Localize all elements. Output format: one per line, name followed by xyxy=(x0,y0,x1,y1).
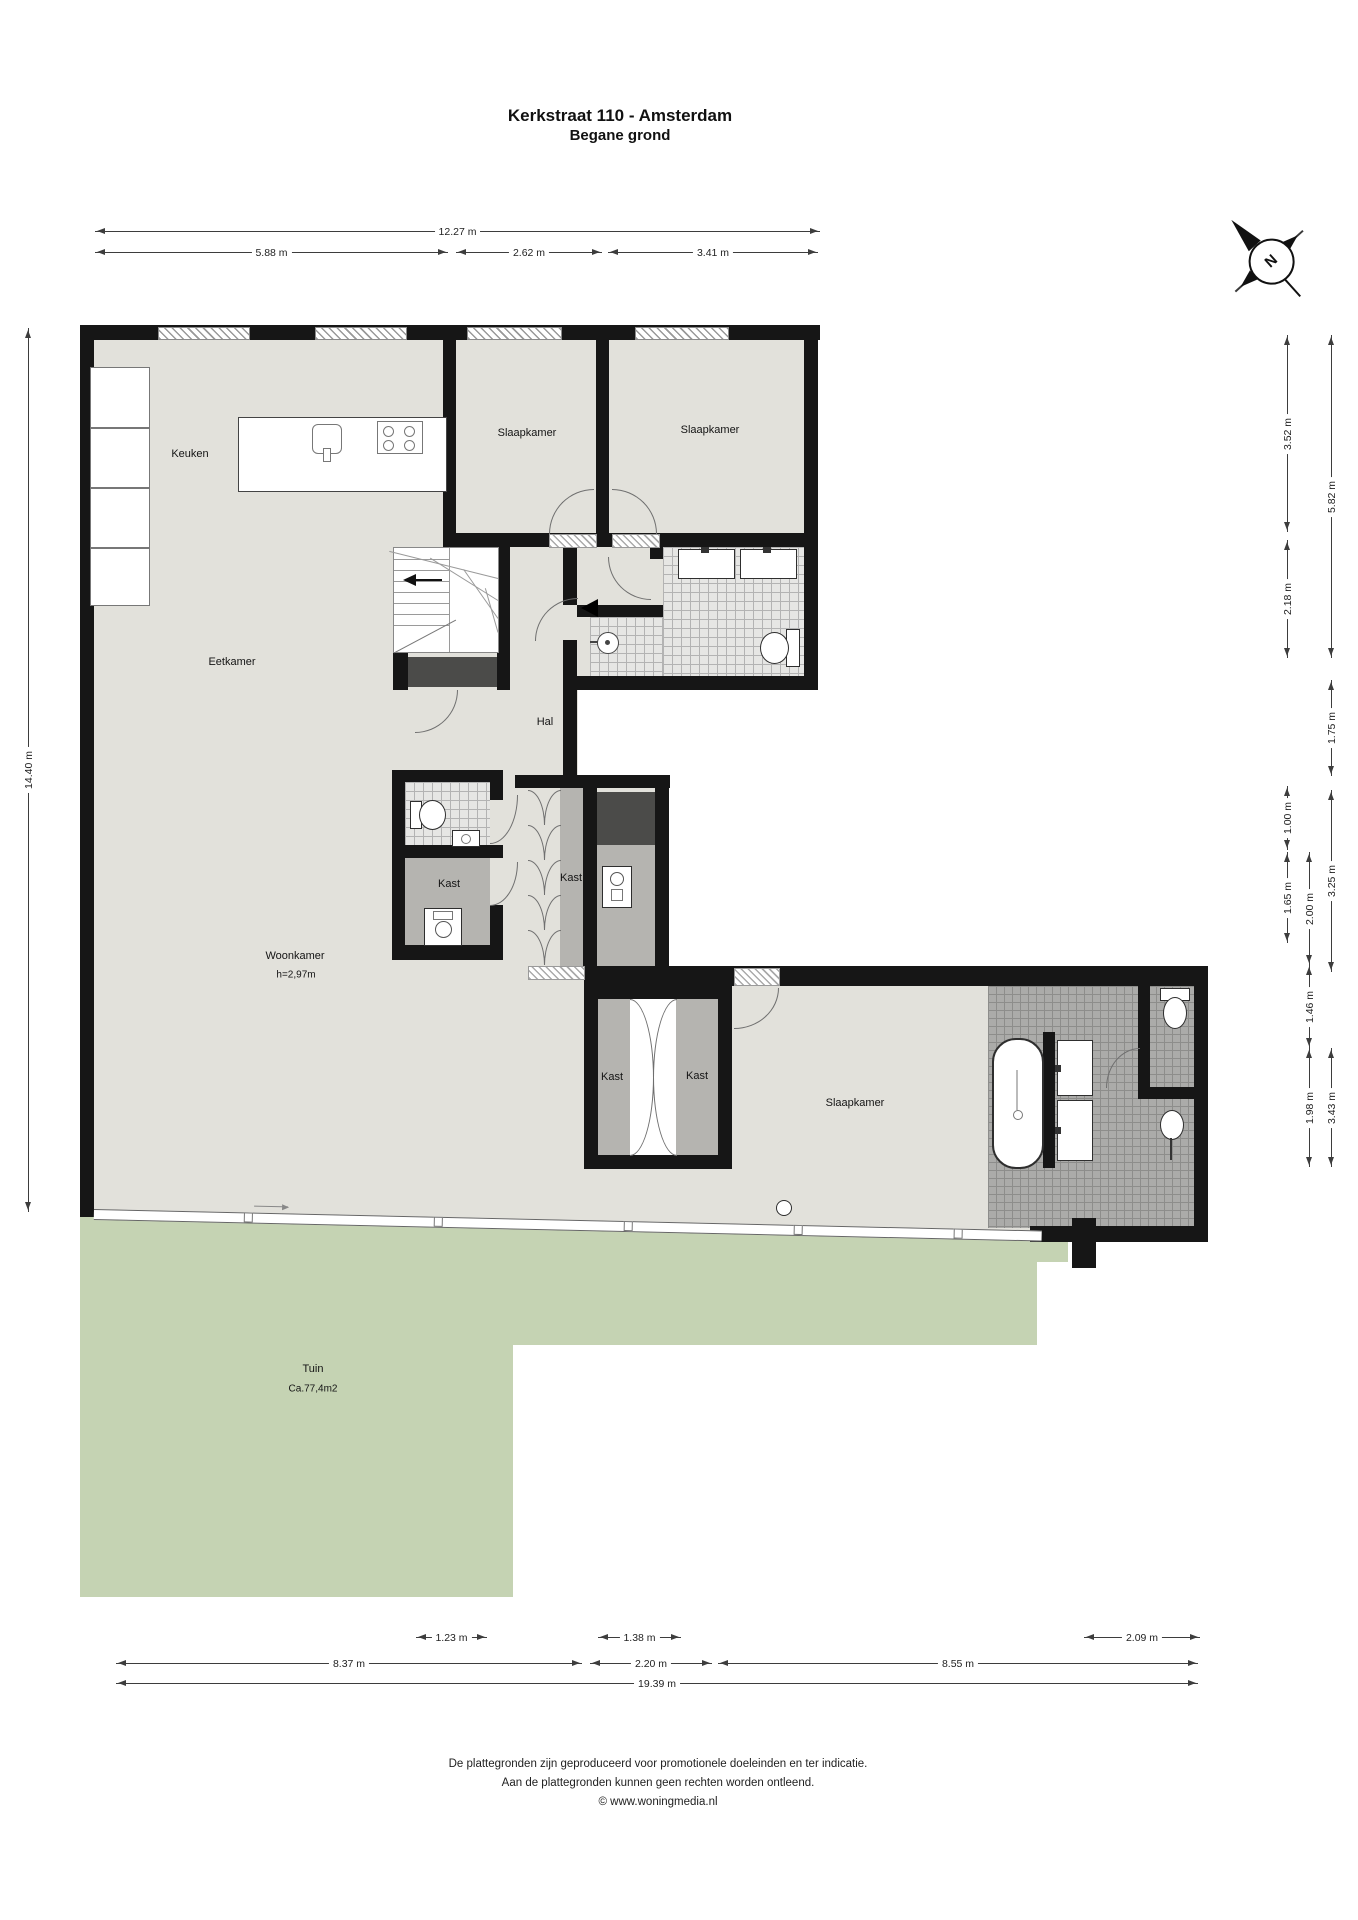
plan-graphic xyxy=(94,228,105,234)
wall-segment xyxy=(393,651,408,690)
plan-graphic xyxy=(1328,789,1334,800)
small-sink xyxy=(1160,1110,1184,1140)
plan-graphic xyxy=(25,327,31,338)
plan-graphic xyxy=(394,625,449,626)
plan-graphic xyxy=(1170,1138,1172,1160)
plan-graphic: 1.98 m xyxy=(1304,1087,1316,1127)
plan-graphic: 1.23 m xyxy=(431,1632,471,1644)
plan-graphic xyxy=(808,249,819,255)
plan-graphic xyxy=(610,872,624,886)
plan-graphic xyxy=(438,249,449,255)
plan-graphic xyxy=(1190,1634,1201,1640)
plan-graphic: 3.41 m xyxy=(693,247,733,259)
plan-graphic xyxy=(624,1221,633,1231)
vanity-sink xyxy=(1057,1040,1093,1096)
plan-graphic xyxy=(597,1634,608,1640)
wall-segment xyxy=(392,770,405,960)
plan-graphic xyxy=(408,657,497,687)
plan-graphic xyxy=(433,911,453,920)
kitchen-island xyxy=(238,417,447,492)
dim-right-10: 3.25 m xyxy=(1331,790,1332,972)
plan-graphic xyxy=(455,249,466,255)
plan-graphic: 3.52 m xyxy=(1282,413,1294,453)
wall-segment xyxy=(515,775,670,788)
plan-graphic xyxy=(1284,933,1290,944)
toilet-bowl xyxy=(760,632,789,664)
wall-segment xyxy=(392,770,503,782)
plan-graphic xyxy=(717,1660,728,1666)
plan-graphic: 12.27 m xyxy=(435,226,481,238)
bathtub xyxy=(992,1038,1044,1169)
cabinet xyxy=(90,488,150,548)
plan-graphic xyxy=(461,834,471,844)
plan-graphic xyxy=(1284,334,1290,345)
plan-graphic xyxy=(1013,1110,1023,1120)
plan-graphic xyxy=(1284,648,1290,659)
door-opening xyxy=(612,534,660,548)
toilet-bowl xyxy=(419,800,446,830)
dim-bottom-1: 1.23 m xyxy=(416,1637,487,1638)
cooktop xyxy=(377,421,423,454)
dim-bottom-3: 2.09 m xyxy=(1084,1637,1200,1638)
plan-graphic xyxy=(1284,522,1290,533)
shaft xyxy=(597,792,655,845)
plan-graphic xyxy=(394,614,449,615)
dim-right-5: 2.00 m xyxy=(1309,852,1310,965)
plan-graphic xyxy=(611,889,623,901)
plan-graphic xyxy=(383,440,394,451)
plan-graphic xyxy=(1328,648,1334,659)
wall-segment xyxy=(804,340,818,690)
plan-graphic xyxy=(394,570,449,571)
title-floor: Begane grond xyxy=(320,127,920,144)
plan-graphic: 19.39 m xyxy=(634,1678,680,1690)
shower-head xyxy=(597,632,619,654)
plan-graphic xyxy=(415,1634,426,1640)
plan-graphic: 5.88 m xyxy=(251,247,291,259)
plan-graphic xyxy=(394,603,449,604)
plan-graphic xyxy=(1328,679,1334,690)
plan-graphic xyxy=(94,249,105,255)
door-opening xyxy=(734,968,780,986)
plan-graphic xyxy=(671,1634,682,1640)
plan-graphic: 5.82 m xyxy=(1326,476,1338,516)
wall-segment xyxy=(598,986,718,999)
cabinet xyxy=(90,548,150,606)
staircase xyxy=(393,547,499,653)
room-label-slaapkamer-3: Slaapkamer xyxy=(826,1097,885,1109)
plan-graphic xyxy=(1284,539,1290,550)
plan-graphic xyxy=(383,426,394,437)
plan-graphic xyxy=(589,1660,600,1666)
room-area-tuin: Ca.77,4m2 xyxy=(289,1384,338,1395)
plan-graphic: N xyxy=(1202,194,1336,328)
plan-graphic xyxy=(323,448,331,462)
dim-bottom-5: 2.20 m xyxy=(590,1663,712,1664)
floorplan-page: Kerkstraat 110 - Amsterdam Begane grond … xyxy=(0,0,1358,1920)
vanity-sink xyxy=(1057,1100,1093,1161)
dim-right-9: 1.75 m xyxy=(1331,680,1332,776)
plan-graphic xyxy=(477,1634,488,1640)
bathroom-sink xyxy=(678,549,735,579)
plan-graphic: 8.55 m xyxy=(938,1658,978,1670)
plan-graphic: 2.00 m xyxy=(1304,888,1316,928)
plan-graphic xyxy=(794,1225,803,1235)
dim-right-3: 1.00 m xyxy=(1287,786,1288,850)
window xyxy=(158,327,250,340)
wall-segment xyxy=(392,945,503,960)
plan-graphic xyxy=(1055,1127,1061,1134)
plan-graphic: 1.75 m xyxy=(1326,708,1338,748)
dim-right-4: 1.65 m xyxy=(1287,852,1288,943)
plan-graphic: 1.65 m xyxy=(1282,877,1294,917)
dim-right-6: 1.46 m xyxy=(1309,965,1310,1048)
dim-top-1: 5.88 m xyxy=(95,252,448,253)
dim-right-8: 5.82 m xyxy=(1331,335,1332,658)
wall-segment xyxy=(596,340,609,547)
plan-graphic xyxy=(1188,1660,1199,1666)
wall-segment xyxy=(584,986,598,1169)
door-opening xyxy=(549,534,597,548)
wall-segment xyxy=(1194,966,1208,1240)
plan-graphic xyxy=(607,249,618,255)
washing-machine xyxy=(424,908,462,946)
plan-graphic xyxy=(115,1660,126,1666)
dim-top-total: 12.27 m xyxy=(95,231,820,232)
cabinet xyxy=(90,428,150,488)
dim-bottom-6: 8.55 m xyxy=(718,1663,1198,1664)
wall-segment xyxy=(563,543,577,605)
dim-top-2: 2.62 m xyxy=(456,252,602,253)
room-label-slaapkamer-2: Slaapkamer xyxy=(681,424,740,436)
plan-graphic xyxy=(1306,1047,1312,1058)
plan-graphic xyxy=(1328,1047,1334,1058)
plan-graphic: 2.09 m xyxy=(1122,1632,1162,1644)
plan-graphic xyxy=(1328,1157,1334,1168)
plan-graphic xyxy=(25,1202,31,1213)
disclaimer-line-2: Aan de plattegronden kunnen geen rechten… xyxy=(358,1774,958,1793)
plan-graphic xyxy=(1284,785,1290,796)
plan-graphic xyxy=(1016,1070,1018,1110)
plan-graphic: 3.43 m xyxy=(1326,1087,1338,1127)
plan-graphic xyxy=(763,547,771,553)
room-label-keuken: Keuken xyxy=(171,448,208,460)
wall-segment xyxy=(583,788,597,966)
plan-graphic xyxy=(701,547,709,553)
wall-segment xyxy=(650,547,663,559)
wall-segment xyxy=(584,966,1205,986)
dim-right-2: 2.18 m xyxy=(1287,540,1288,658)
room-label-slaapkamer-1: Slaapkamer xyxy=(498,427,557,439)
plan-graphic xyxy=(1083,1634,1094,1640)
disclaimer-line-1: De plattegronden zijn geproduceerd voor … xyxy=(358,1755,958,1774)
plan-graphic xyxy=(404,426,415,437)
dim-bottom-total: 19.39 m xyxy=(116,1683,1198,1684)
wall-segment xyxy=(563,640,577,788)
plan-graphic xyxy=(1284,851,1290,862)
cabinet xyxy=(90,367,150,428)
plan-graphic xyxy=(394,592,449,593)
door-opening xyxy=(528,966,585,980)
window xyxy=(315,327,407,340)
compass-north-icon: N xyxy=(1222,214,1317,309)
wall-segment xyxy=(563,676,818,690)
toilet-bowl xyxy=(1163,997,1187,1029)
plan-graphic xyxy=(434,1217,443,1227)
plan-graphic: 1.38 m xyxy=(619,1632,659,1644)
dim-bottom-2: 1.38 m xyxy=(598,1637,681,1638)
room-label-woonkamer: Woonkamer xyxy=(265,950,324,962)
plan-graphic: 3.25 m xyxy=(1326,861,1338,901)
room-label-kast-left: Kast xyxy=(601,1071,623,1083)
plan-graphic xyxy=(1055,1065,1061,1072)
plan-graphic xyxy=(244,1212,253,1222)
copyright: © www.woningmedia.nl xyxy=(358,1793,958,1812)
room-label-tuin: Tuin xyxy=(303,1363,324,1375)
plan-graphic xyxy=(590,641,598,643)
plan-graphic xyxy=(404,440,415,451)
wall-segment xyxy=(655,775,669,968)
plan-graphic: 2.18 m xyxy=(1282,579,1294,619)
wall-segment xyxy=(1030,1226,1208,1242)
plan-graphic xyxy=(115,1680,126,1686)
room-label-hal: Hal xyxy=(537,716,554,728)
room-label-eetkamer: Eetkamer xyxy=(208,656,255,668)
room-label-kast-right: Kast xyxy=(686,1070,708,1082)
water-heater xyxy=(602,866,632,908)
plan-graphic xyxy=(605,640,610,645)
window xyxy=(467,327,562,340)
plan-graphic xyxy=(954,1229,963,1239)
door-handle xyxy=(776,1200,792,1216)
room-label-kast-utility: Kast xyxy=(438,878,460,890)
page-title: Kerkstraat 110 - Amsterdam Begane grond xyxy=(320,106,920,144)
plan-graphic xyxy=(592,249,603,255)
plan-graphic xyxy=(1328,962,1334,973)
plan-graphic xyxy=(810,228,821,234)
plan-graphic xyxy=(1284,840,1290,851)
wall-segment xyxy=(718,986,732,1155)
plan-graphic: 14.40 m xyxy=(23,747,35,793)
plan-graphic xyxy=(1188,1680,1199,1686)
plan-graphic xyxy=(702,1660,713,1666)
plan-graphic: 2.62 m xyxy=(509,247,549,259)
plan-graphic xyxy=(410,579,442,581)
plan-graphic xyxy=(1328,766,1334,777)
plan-graphic xyxy=(572,1660,583,1666)
plan-graphic xyxy=(435,921,452,938)
plan-graphic xyxy=(449,548,450,652)
wall-segment xyxy=(490,905,503,945)
dim-right-7: 1.98 m xyxy=(1309,1048,1310,1167)
dim-right-11: 3.43 m xyxy=(1331,1048,1332,1167)
plan-graphic xyxy=(1306,1157,1312,1168)
entrance-arrow-icon xyxy=(581,599,598,617)
plan-graphic xyxy=(485,588,499,632)
bathroom-sink xyxy=(740,549,797,579)
plan-graphic xyxy=(1328,334,1334,345)
wall-segment xyxy=(584,1155,732,1169)
dim-top-3: 3.41 m xyxy=(608,252,818,253)
window xyxy=(635,327,729,340)
plan-graphic xyxy=(1306,851,1312,862)
dim-left-total: 14.40 m xyxy=(28,328,29,1212)
wall-segment xyxy=(1072,1218,1096,1268)
hand-sink xyxy=(452,830,480,847)
plan-graphic xyxy=(282,1204,292,1210)
dim-right-1: 3.52 m xyxy=(1287,335,1288,532)
room-label-kast-hall: Kast xyxy=(560,872,582,884)
title-address: Kerkstraat 110 - Amsterdam xyxy=(320,106,920,126)
plan-graphic: 8.37 m xyxy=(329,1658,369,1670)
plan-graphic: 2.20 m xyxy=(631,1658,671,1670)
wall-segment xyxy=(1043,1032,1055,1168)
plan-graphic xyxy=(1306,964,1312,975)
plan-graphic: 1.00 m xyxy=(1282,798,1294,838)
room-height-woonkamer: h=2,97m xyxy=(276,970,315,981)
disclaimer: De plattegronden zijn geproduceerd voor … xyxy=(358,1755,958,1812)
dim-bottom-4: 8.37 m xyxy=(116,1663,582,1664)
plan-graphic: 1.46 m xyxy=(1304,986,1316,1026)
